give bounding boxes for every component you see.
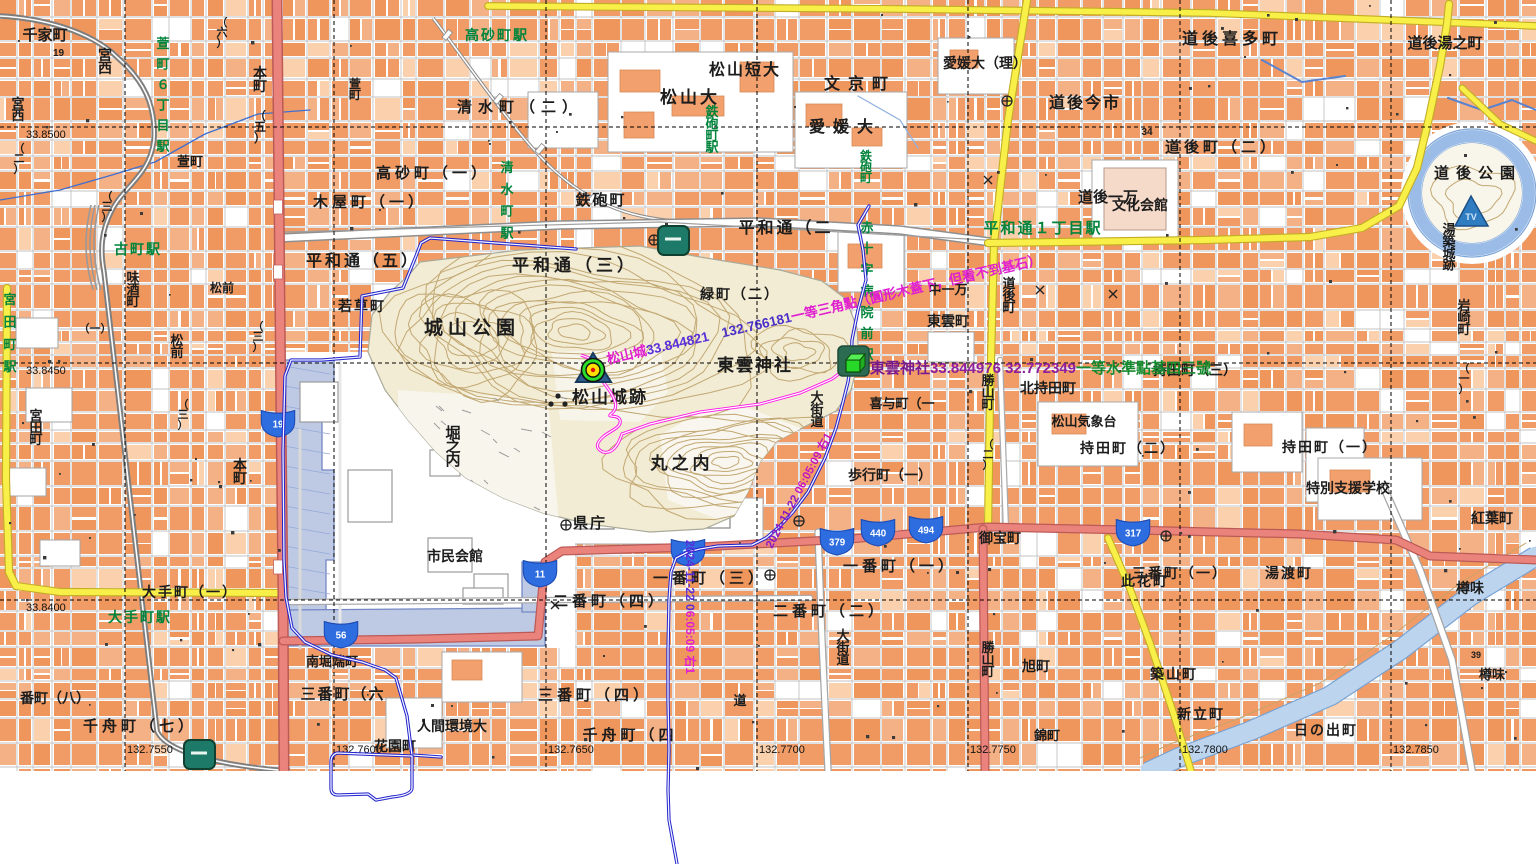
svg-text:萱町: 萱町: [177, 154, 203, 169]
svg-text:（一）: （一）: [79, 322, 112, 335]
svg-text:歩行町（一）: 歩行町（一）: [848, 467, 932, 483]
svg-text:三番町（六: 三番町（六: [300, 685, 385, 703]
svg-text:道後町: 道後町: [1002, 276, 1016, 315]
svg-text:379: 379: [829, 537, 846, 548]
svg-text:愛媛大: 愛媛大: [809, 117, 881, 136]
svg-text:132.7850: 132.7850: [1393, 744, 1439, 756]
svg-text:堀之内: 堀之内: [445, 425, 460, 469]
svg-text:番町（八）: 番町（八）: [19, 690, 90, 706]
svg-text:宮田町: 宮田町: [29, 408, 42, 447]
svg-text:道: 道: [733, 693, 746, 708]
svg-text:北持田町: 北持田町: [1020, 380, 1076, 396]
svg-text:愛媛大（理）: 愛媛大（理）: [943, 55, 1027, 71]
svg-text:萱町: 萱町: [349, 76, 361, 102]
svg-text:2024-11-22 06:05:09 右1: 2024-11-22 06:05:09 右1: [683, 540, 698, 674]
svg-text:132.7550: 132.7550: [127, 744, 173, 756]
svg-text:本町: 本町: [253, 65, 268, 94]
svg-text:松山気象台: 松山気象台: [1051, 414, 1116, 429]
svg-text:特別支援学校: 特別支援学校: [1306, 480, 1391, 496]
svg-text:33.8400: 33.8400: [26, 602, 66, 614]
svg-text:本町: 本町: [233, 457, 248, 486]
svg-text:平和通（二: 平和通（二: [738, 218, 833, 237]
svg-text:持田町（一）: 持田町（一）: [1282, 439, 1378, 455]
svg-text:平和通（三）: 平和通（三）: [512, 255, 638, 275]
svg-text:県庁: 県庁: [573, 514, 607, 532]
svg-text:440: 440: [870, 528, 886, 539]
svg-text:宮西: 宮西: [11, 96, 24, 123]
svg-text:道後町（二）: 道後町（二）: [1165, 138, 1279, 156]
svg-text:文京町: 文京町: [824, 74, 896, 93]
svg-text:二番町（二）: 二番町（二）: [773, 602, 887, 620]
svg-text:39: 39: [1471, 650, 1481, 660]
svg-text:平和通（五）: 平和通（五）: [306, 251, 420, 270]
svg-text:大手町（一）: 大手町（一）: [142, 584, 238, 600]
svg-text:鉄砲町: 鉄砲町: [575, 191, 626, 209]
svg-text:33.8500: 33.8500: [26, 129, 66, 141]
svg-text:持田町（二）: 持田町（二）: [1080, 440, 1176, 456]
svg-text:317: 317: [1125, 528, 1141, 539]
svg-text:東雲町: 東雲町: [927, 313, 969, 329]
svg-text:一番町（一）: 一番町（一）: [843, 557, 957, 575]
svg-text:（三）: （三）: [102, 190, 113, 223]
svg-text:（五）: （五）: [254, 108, 266, 145]
svg-text:132.7800: 132.7800: [1182, 744, 1228, 756]
svg-text:494: 494: [918, 525, 935, 536]
svg-text:勝山町: 勝山町: [981, 640, 995, 679]
svg-text:道後湯之町: 道後湯之町: [1407, 34, 1482, 52]
svg-text:勝山町: 勝山町: [981, 373, 995, 412]
svg-text:文化会館: 文化会館: [1112, 197, 1168, 213]
svg-text:大街道: 大街道: [809, 390, 823, 429]
svg-text:松前: 松前: [210, 280, 234, 295]
svg-text:湯渡町: 湯渡町: [1265, 565, 1313, 581]
svg-text:大街道: 大街道: [835, 628, 849, 667]
svg-text:高砂町駅: 高砂町駅: [465, 27, 529, 43]
svg-text:TV: TV: [1465, 212, 1477, 222]
svg-text:千家町: 千家町: [22, 26, 67, 44]
svg-text:古町駅: 古町駅: [114, 241, 162, 257]
svg-text:旭町: 旭町: [1021, 658, 1050, 674]
svg-text:丸之内: 丸之内: [650, 453, 714, 473]
svg-text:33.8450: 33.8450: [26, 365, 66, 377]
svg-text:132.7700: 132.7700: [759, 744, 805, 756]
svg-text:（二）: （二）: [14, 142, 25, 175]
svg-text:高砂町（一）: 高砂町（一）: [376, 164, 490, 182]
svg-text:新立町: 新立町: [1177, 706, 1225, 722]
svg-text:日の出町: 日の出町: [1294, 722, 1358, 738]
svg-text:東雲神社: 東雲神社: [717, 355, 793, 375]
svg-text:御宝町: 御宝町: [978, 530, 1021, 546]
svg-text:19: 19: [53, 48, 65, 59]
svg-text:城山公園: 城山公園: [424, 316, 520, 339]
svg-text:築山町: 築山町: [1149, 666, 1198, 682]
svg-text:道後公園: 道後公園: [1434, 164, 1522, 182]
svg-text:樽味: 樽味: [1456, 580, 1484, 596]
svg-text:11: 11: [535, 569, 546, 580]
svg-text:鉄砲町駅: 鉄砲町駅: [704, 104, 719, 155]
svg-text:（一）: （一）: [1459, 362, 1470, 395]
svg-text:千舟町（七）: 千舟町（七）: [83, 717, 197, 735]
svg-text:道後今市: 道後今市: [1049, 93, 1121, 112]
svg-text:二番町（四）: 二番町（四）: [553, 592, 667, 610]
svg-text:（六）: （六）: [217, 16, 228, 49]
svg-text:132.7650: 132.7650: [548, 744, 594, 756]
svg-text:東雲神社33.844976 32.772349一等水準點基: 東雲神社33.844976 32.772349一等水準點基四三號: [870, 359, 1211, 377]
svg-text:34: 34: [1141, 127, 1153, 138]
svg-text:湯築城跡: 湯築城跡: [1441, 222, 1456, 273]
svg-text:此花町: 此花町: [1121, 573, 1169, 589]
svg-text:（二）: （二）: [983, 438, 994, 471]
svg-text:道後喜多町: 道後喜多町: [1182, 29, 1282, 48]
svg-text:56: 56: [336, 630, 347, 641]
svg-text:（三）: （三）: [253, 320, 264, 353]
svg-text:32: 32: [738, 358, 750, 369]
svg-text:木屋町（一）: 木屋町（一）: [312, 193, 427, 211]
svg-text:（三）: （三）: [178, 398, 189, 431]
svg-text:樽味: 樽味: [1479, 667, 1505, 682]
svg-text:緑町（二）: 緑町（二）: [700, 286, 780, 302]
svg-text:紅葉町: 紅葉町: [1471, 510, 1513, 526]
svg-text:錦町: 錦町: [1034, 728, 1060, 743]
svg-text:千舟町（四: 千舟町（四: [582, 726, 677, 744]
svg-text:人間環境大: 人間環境大: [417, 718, 487, 734]
svg-text:喜与町（一: 喜与町（一: [869, 396, 934, 411]
svg-text:三番町（四）: 三番町（四）: [538, 686, 652, 704]
svg-text:宮西: 宮西: [98, 47, 112, 76]
svg-text:味酒町: 味酒町: [126, 270, 139, 309]
svg-text:132.7750: 132.7750: [970, 744, 1016, 756]
svg-text:岩崎町: 岩崎町: [1456, 298, 1470, 337]
svg-text:松山短大: 松山短大: [709, 60, 781, 79]
svg-text:市民会館: 市民会館: [427, 548, 483, 564]
svg-text:松前: 松前: [170, 333, 183, 360]
svg-text:清水町（二）: 清水町（二）: [457, 98, 583, 116]
svg-text:鉄砲町: 鉄砲町: [859, 148, 872, 185]
svg-text:平和通１丁目駅: 平和通１丁目駅: [983, 220, 1102, 237]
svg-text:大手町駅: 大手町駅: [108, 609, 172, 625]
